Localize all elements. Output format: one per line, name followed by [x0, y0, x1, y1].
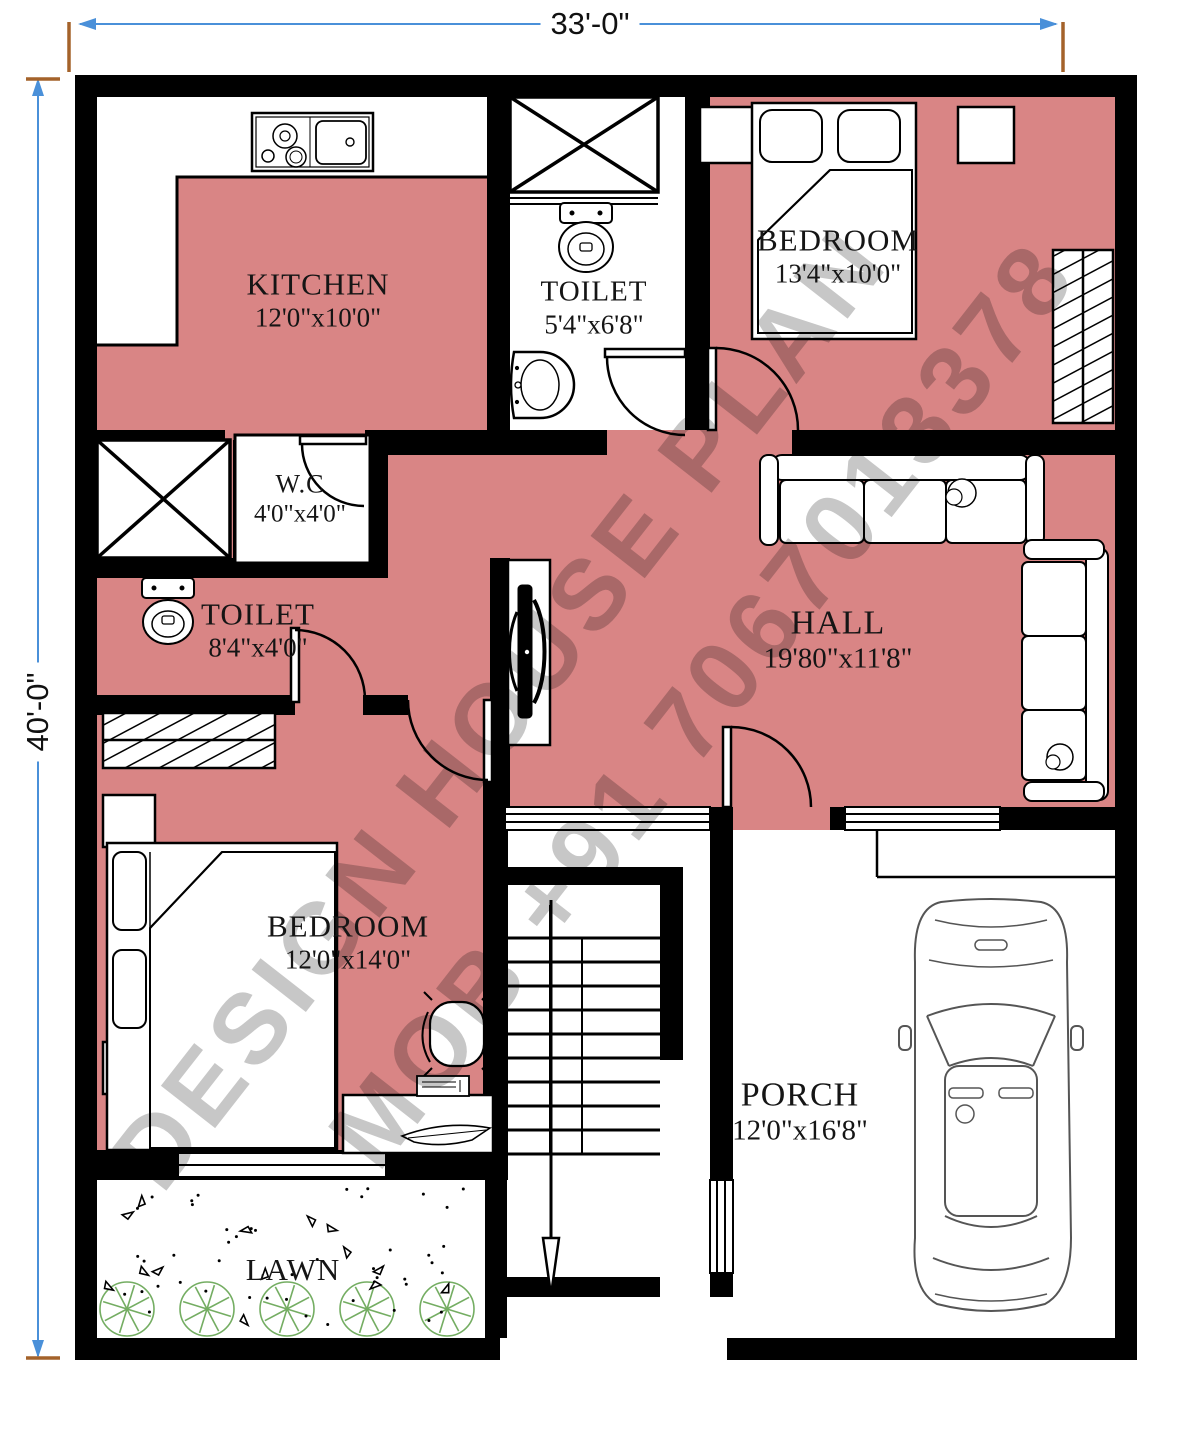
label-kitchen: KITCHEN 12'0"x10'0": [246, 266, 389, 333]
door-leaf: [708, 348, 716, 430]
label-hall: HALL 19'80"x11'8": [763, 603, 912, 676]
label-bedroom-top: BEDROOM 13'4"x10'0": [757, 222, 919, 289]
floor-plan: DESIGN HOUSE PLAN MOB +91 7067013378 33'…: [0, 0, 1200, 1441]
label-toilet-top: TOILET 5'4"x6'8": [541, 276, 648, 341]
label-lawn: LAWN: [246, 1252, 341, 1288]
car: [899, 899, 1083, 1311]
sofa-horizontal: [760, 455, 1044, 545]
sofa-vertical: [1022, 540, 1108, 801]
door-leaf: [723, 727, 731, 807]
label-porch: PORCH 12'0"x16'8": [732, 1075, 868, 1148]
bed-bottom: [107, 843, 337, 1150]
dimension-height: 40'-0": [20, 663, 56, 762]
door-leaf: [605, 349, 685, 357]
label-toilet-left: TOILET 8'4"x4'0": [201, 596, 315, 663]
tv-unit: [508, 560, 550, 745]
door-leaf: [484, 700, 492, 782]
plan-drawing: [0, 0, 1200, 1441]
door-leaf: [300, 436, 366, 444]
label-bedroom-bottom: BEDROOM 12'0"x14'0": [267, 908, 429, 975]
label-wc: W.C 4'0"x4'0": [254, 469, 346, 528]
side-table: [700, 107, 756, 163]
bed-top: [752, 103, 916, 339]
side-table: [958, 107, 1014, 163]
dimension-width: 33'-0": [541, 6, 640, 42]
side-table: [103, 795, 155, 847]
